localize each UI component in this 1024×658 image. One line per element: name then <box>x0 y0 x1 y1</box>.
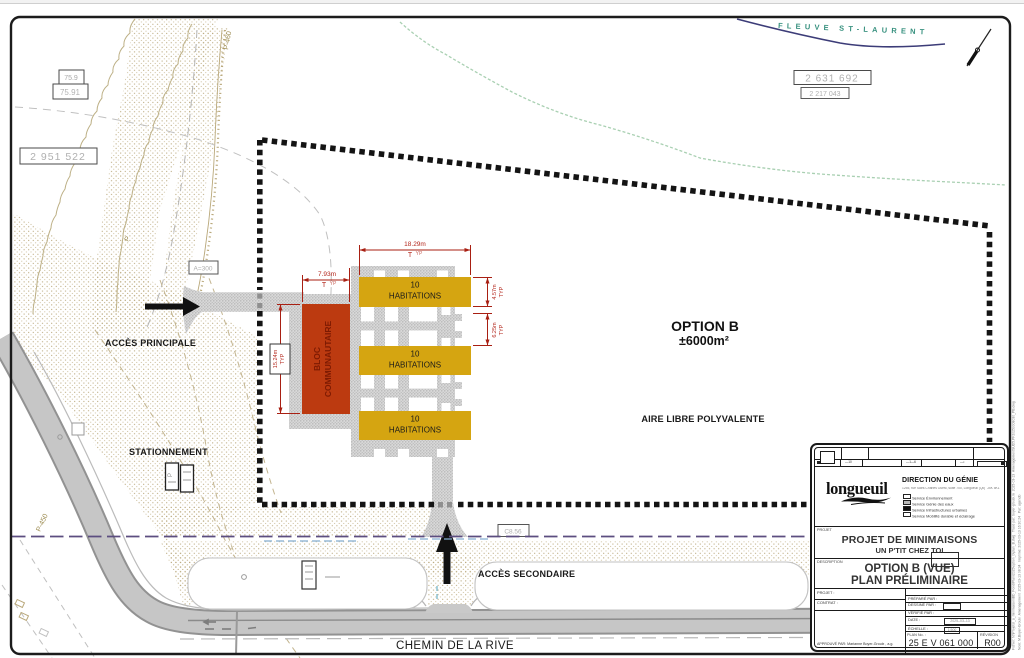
svg-text:10: 10 <box>411 350 420 359</box>
svg-text:15.24m: 15.24m <box>273 349 279 368</box>
svg-text:TYP: TYP <box>499 324 505 335</box>
svg-text:75.91: 75.91 <box>60 88 81 97</box>
svg-text:HABITATIONS: HABITATIONS <box>389 292 441 301</box>
svg-text:T: T <box>408 252 413 259</box>
svg-text:75.9: 75.9 <box>64 75 78 82</box>
svg-text:ACCÈS SECONDAIRE: ACCÈS SECONDAIRE <box>478 569 575 579</box>
svg-text:BLOC: BLOC <box>312 347 322 371</box>
svg-text:2 631 692: 2 631 692 <box>805 74 859 85</box>
svg-text:2 951 522: 2 951 522 <box>30 151 86 163</box>
svg-text:YP: YP <box>416 251 423 257</box>
svg-text:COMMUNAUTAIRE: COMMUNAUTAIRE <box>323 321 333 398</box>
svg-text:CHEMIN DE LA RIVE: CHEMIN DE LA RIVE <box>396 640 514 652</box>
svg-text:P-450: P-450 <box>35 513 49 533</box>
svg-text:ACCÈS PRINCIPALE: ACCÈS PRINCIPALE <box>105 338 196 348</box>
svg-text:AIRE LIBRE POLYVALENTE: AIRE LIBRE POLYVALENTE <box>641 414 764 424</box>
svg-text:T: T <box>322 282 327 289</box>
svg-text:STATIONNEMENT: STATIONNEMENT <box>129 447 208 457</box>
svg-text:2 217 043: 2 217 043 <box>809 91 840 98</box>
svg-text:OPTION B: OPTION B <box>671 318 739 334</box>
svg-text:18.29m: 18.29m <box>404 241 426 248</box>
svg-text:±6000m²: ±6000m² <box>679 334 729 348</box>
svg-text:7.93m: 7.93m <box>318 271 336 278</box>
svg-text:TYP: TYP <box>280 353 286 364</box>
svg-text:4.57m: 4.57m <box>492 284 498 300</box>
svg-text:C8.56: C8.56 <box>504 529 522 536</box>
svg-text:6.25m: 6.25m <box>492 322 498 338</box>
svg-text:P: P <box>168 473 174 477</box>
svg-text:10: 10 <box>411 415 420 424</box>
svg-text:A=300: A=300 <box>194 266 213 273</box>
svg-text:HABITATIONS: HABITATIONS <box>389 361 441 370</box>
svg-text:YP: YP <box>330 281 337 287</box>
svg-text:HABITATIONS: HABITATIONS <box>389 426 441 435</box>
svg-text:10: 10 <box>411 281 420 290</box>
svg-text:TYP: TYP <box>499 286 505 297</box>
